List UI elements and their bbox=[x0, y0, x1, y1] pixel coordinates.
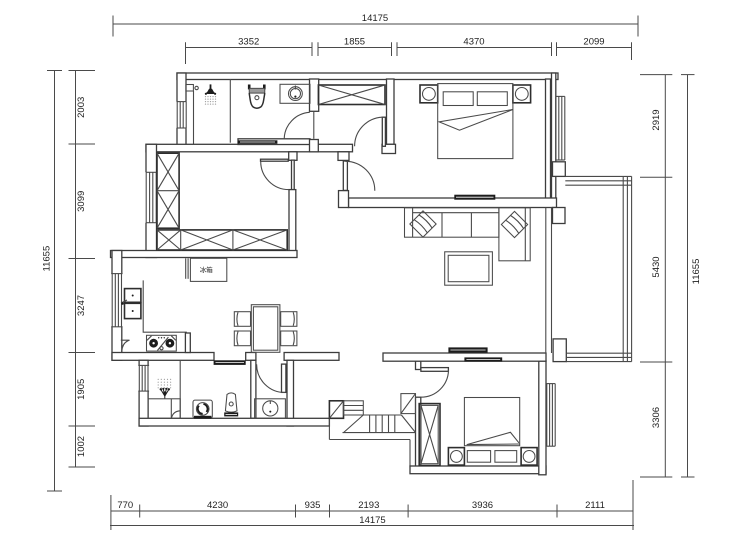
svg-text:14175: 14175 bbox=[362, 13, 388, 24]
svg-text:1855: 1855 bbox=[344, 36, 365, 47]
svg-text:1002: 1002 bbox=[76, 436, 87, 457]
svg-text:5430: 5430 bbox=[651, 256, 662, 277]
svg-text:3352: 3352 bbox=[238, 36, 259, 47]
svg-text:3247: 3247 bbox=[76, 295, 87, 316]
svg-text:935: 935 bbox=[305, 500, 321, 511]
svg-text:3099: 3099 bbox=[76, 191, 87, 212]
svg-text:3936: 3936 bbox=[472, 500, 493, 511]
svg-text:1905: 1905 bbox=[76, 379, 87, 400]
svg-text:2919: 2919 bbox=[651, 109, 662, 130]
svg-text:2003: 2003 bbox=[76, 97, 87, 118]
svg-text:4370: 4370 bbox=[463, 36, 484, 47]
svg-text:14175: 14175 bbox=[359, 515, 385, 526]
svg-text:3306: 3306 bbox=[651, 407, 662, 428]
svg-text:冰箱: 冰箱 bbox=[200, 265, 214, 274]
svg-text:770: 770 bbox=[117, 500, 133, 511]
svg-text:11655: 11655 bbox=[42, 246, 53, 272]
svg-text:4230: 4230 bbox=[207, 500, 228, 511]
svg-text:2099: 2099 bbox=[583, 36, 604, 47]
svg-text:2193: 2193 bbox=[358, 500, 379, 511]
svg-text:2111: 2111 bbox=[585, 500, 605, 511]
svg-text:11655: 11655 bbox=[691, 259, 702, 285]
